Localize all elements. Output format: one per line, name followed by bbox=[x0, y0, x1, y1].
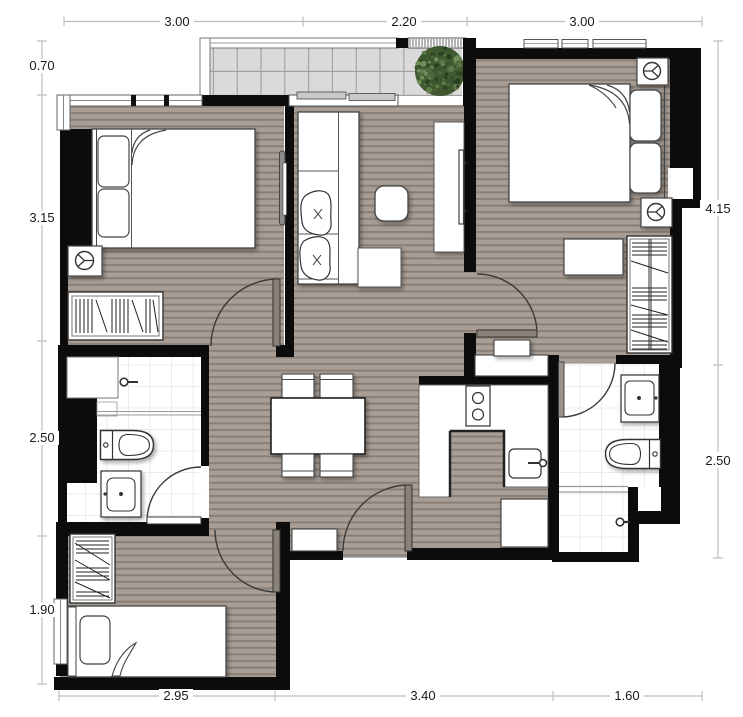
svg-text:3.00: 3.00 bbox=[569, 14, 594, 29]
svg-text:2.50: 2.50 bbox=[29, 430, 54, 445]
svg-text:3.40: 3.40 bbox=[410, 688, 435, 703]
svg-text:2.95: 2.95 bbox=[163, 688, 188, 703]
svg-text:1.60: 1.60 bbox=[614, 688, 639, 703]
svg-text:1.90: 1.90 bbox=[29, 602, 54, 617]
svg-text:3.00: 3.00 bbox=[164, 14, 189, 29]
svg-text:2.20: 2.20 bbox=[391, 14, 416, 29]
svg-text:3.15: 3.15 bbox=[29, 210, 54, 225]
svg-text:4.15: 4.15 bbox=[705, 201, 730, 216]
svg-text:0.70: 0.70 bbox=[29, 58, 54, 73]
svg-text:2.50: 2.50 bbox=[705, 453, 730, 468]
